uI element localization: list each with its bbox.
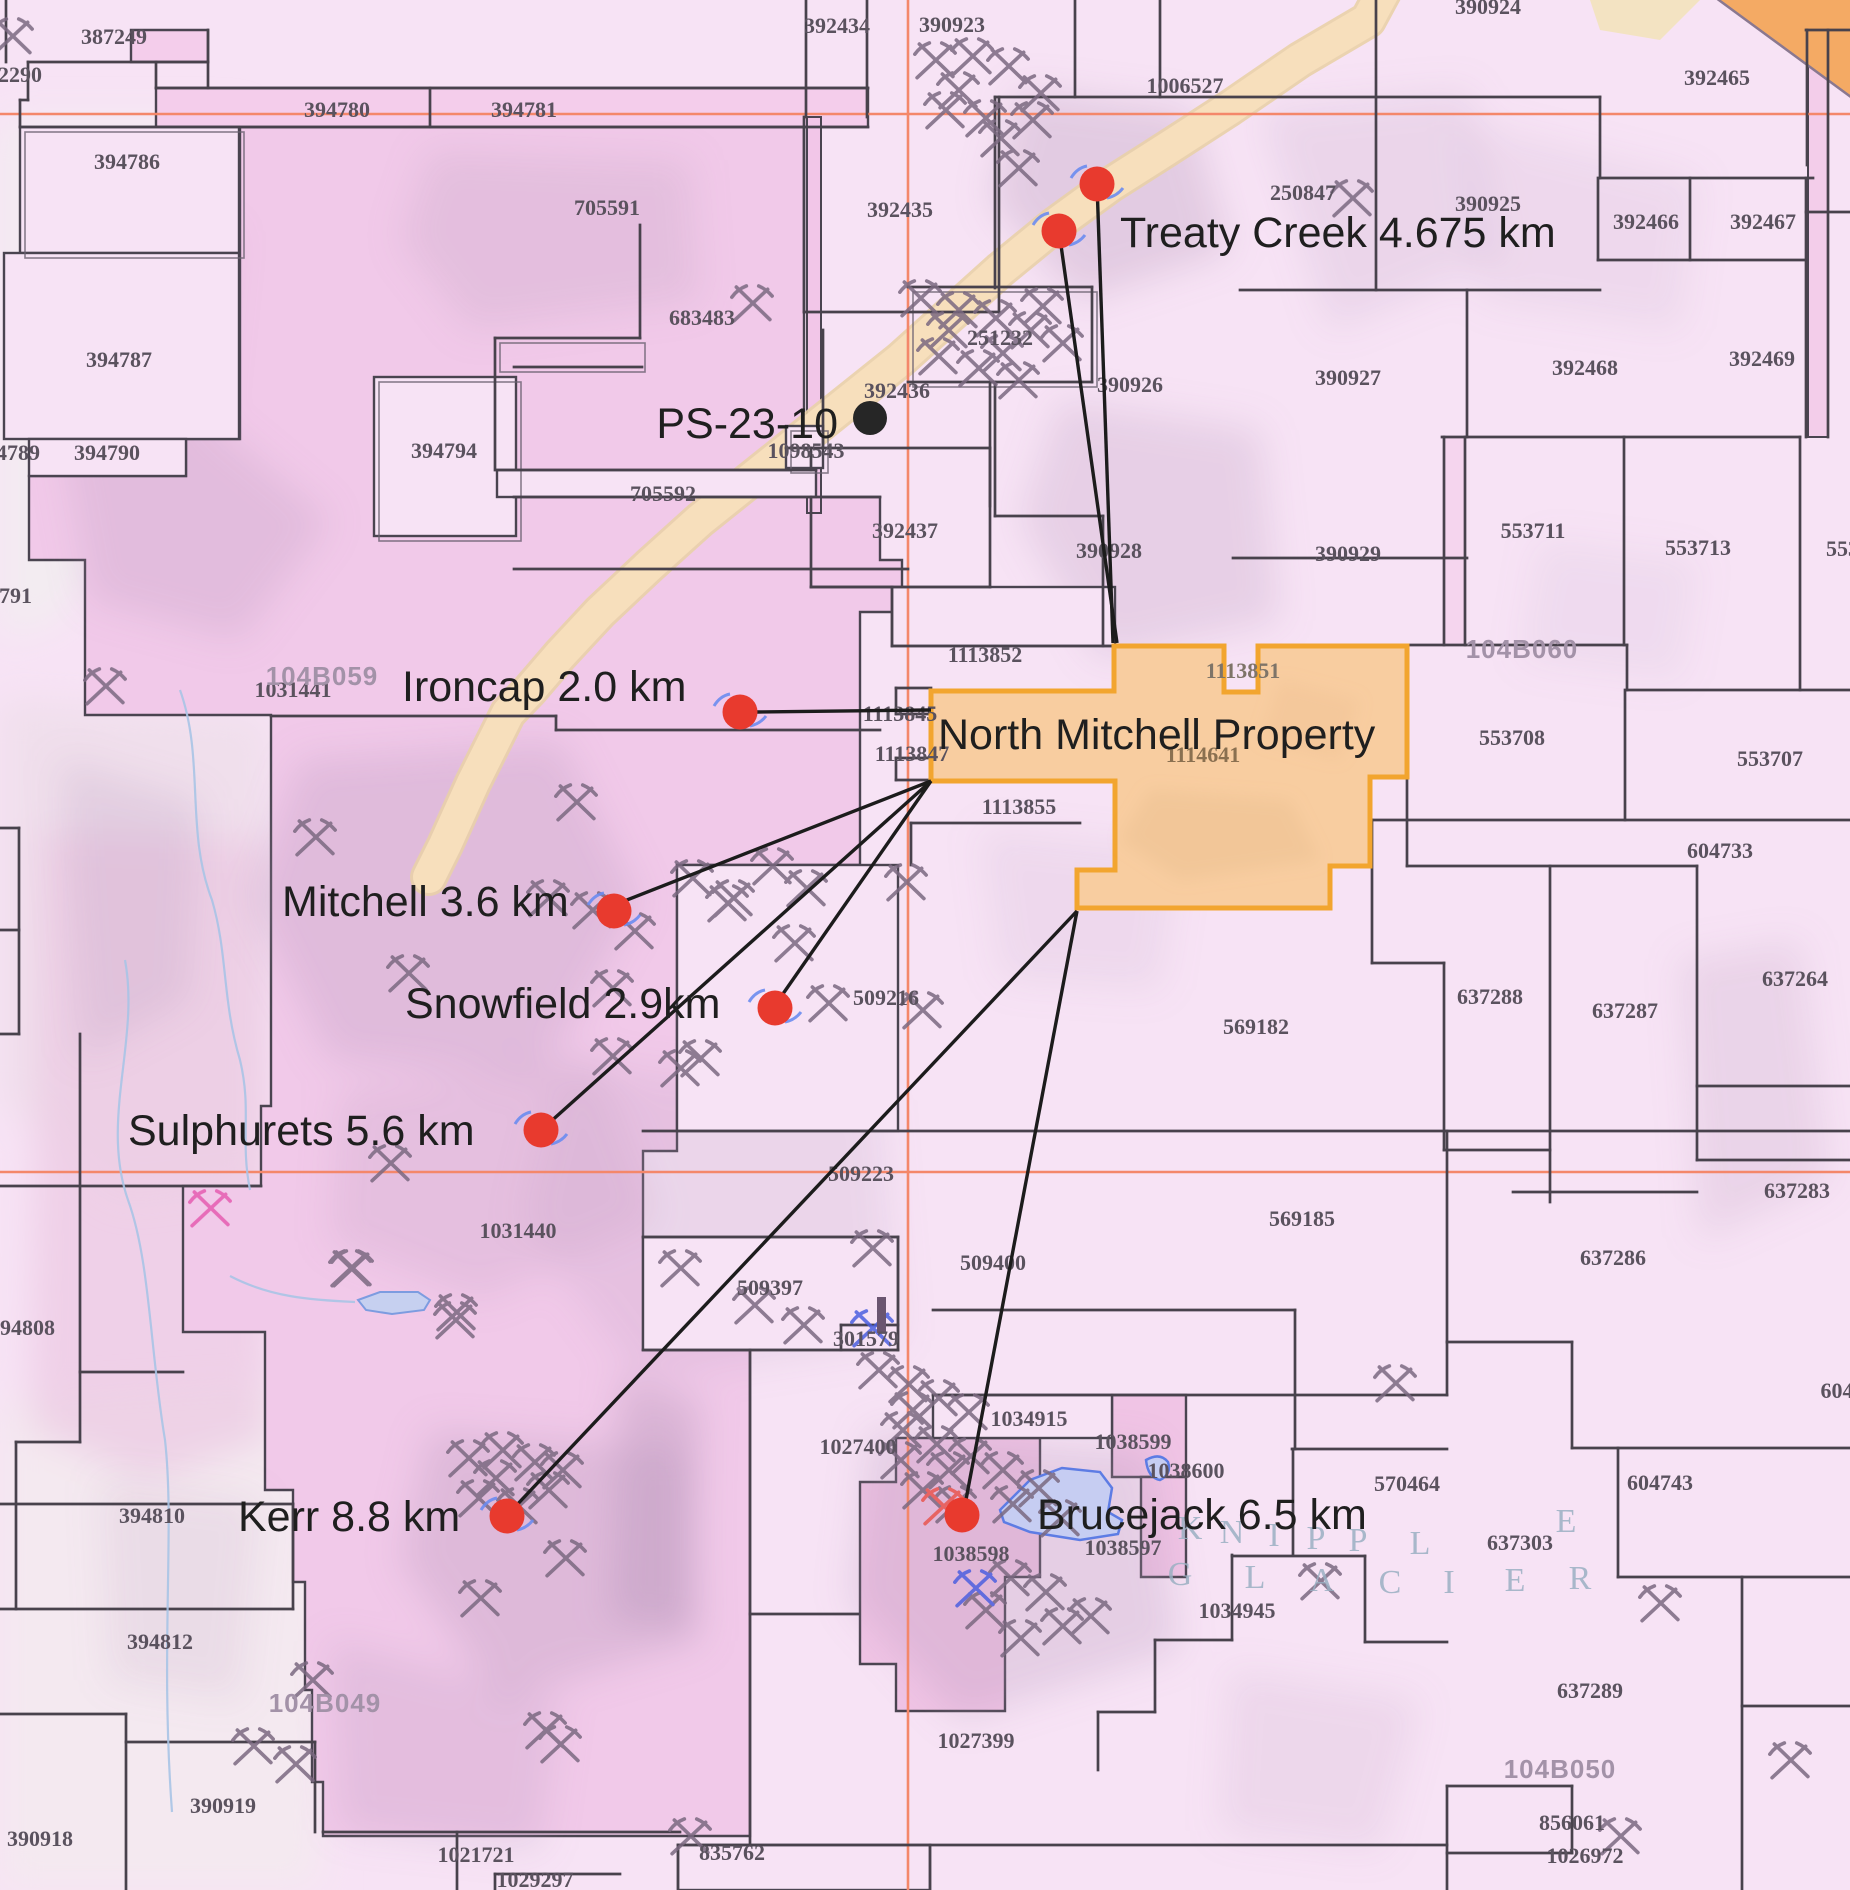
- svg-text:390926: 390926: [1097, 372, 1163, 397]
- svg-text:1034915: 1034915: [991, 1406, 1068, 1431]
- svg-text:104B059: 104B059: [266, 661, 379, 691]
- svg-text:1038600: 1038600: [1148, 1458, 1225, 1483]
- svg-text:Snowfield 2.9km: Snowfield 2.9km: [405, 980, 721, 1028]
- svg-text:2290: 2290: [0, 62, 42, 87]
- svg-text:705591: 705591: [574, 195, 640, 220]
- svg-text:North Mitchell Property: North Mitchell Property: [938, 711, 1376, 759]
- svg-text:394787: 394787: [86, 347, 152, 372]
- svg-text:553711: 553711: [1501, 518, 1566, 543]
- svg-text:569185: 569185: [1269, 1206, 1335, 1231]
- svg-text:390927: 390927: [1315, 365, 1381, 390]
- svg-text:L: L: [1410, 1525, 1431, 1562]
- svg-text:637264: 637264: [1762, 966, 1828, 991]
- svg-text:104B050: 104B050: [1504, 1754, 1617, 1784]
- svg-text:1113852: 1113852: [948, 642, 1023, 667]
- svg-text:1031440: 1031440: [480, 1218, 557, 1243]
- svg-text:1113851: 1113851: [1206, 658, 1281, 683]
- svg-text:509400: 509400: [960, 1250, 1026, 1275]
- svg-text:1034945: 1034945: [1199, 1598, 1276, 1623]
- svg-text:Brucejack 6.5 km: Brucejack 6.5 km: [1037, 1491, 1367, 1539]
- svg-text:392467: 392467: [1730, 209, 1796, 234]
- svg-text:705592: 705592: [630, 481, 696, 506]
- svg-text:Mitchell 3.6 km: Mitchell 3.6 km: [282, 878, 569, 926]
- svg-text:390924: 390924: [1455, 0, 1521, 19]
- svg-text:392466: 392466: [1613, 209, 1679, 234]
- svg-text:1113845: 1113845: [863, 701, 938, 726]
- svg-text:394810: 394810: [119, 1503, 185, 1528]
- svg-text:637289: 637289: [1557, 1678, 1623, 1703]
- svg-text:509216: 509216: [853, 985, 919, 1010]
- svg-text:301579: 301579: [833, 1326, 899, 1351]
- svg-text:390929: 390929: [1315, 541, 1381, 566]
- svg-text:1038598: 1038598: [933, 1541, 1010, 1566]
- svg-text:637283: 637283: [1764, 1178, 1830, 1203]
- svg-text:683483: 683483: [669, 305, 735, 330]
- svg-text:392465: 392465: [1684, 65, 1750, 90]
- svg-text:C: C: [1379, 1564, 1402, 1601]
- svg-text:394790: 394790: [74, 440, 140, 465]
- svg-text:637303: 637303: [1487, 1530, 1553, 1555]
- svg-text:394781: 394781: [491, 97, 557, 122]
- svg-text:Ironcap 2.0 km: Ironcap 2.0 km: [402, 663, 686, 711]
- svg-text:1027399: 1027399: [938, 1728, 1015, 1753]
- svg-text:5537: 5537: [1826, 536, 1850, 561]
- svg-text:390923: 390923: [919, 12, 985, 37]
- svg-text:Kerr 8.8 km: Kerr 8.8 km: [238, 1493, 460, 1541]
- svg-text:104B060: 104B060: [1466, 634, 1579, 664]
- svg-text:392468: 392468: [1552, 355, 1618, 380]
- svg-text:637288: 637288: [1457, 984, 1523, 1009]
- svg-text:553708: 553708: [1479, 725, 1545, 750]
- svg-text:1026972: 1026972: [1547, 1843, 1624, 1868]
- svg-text:394794: 394794: [411, 438, 477, 463]
- svg-text:1021721: 1021721: [438, 1842, 515, 1867]
- svg-text:553713: 553713: [1665, 535, 1731, 560]
- svg-text:250847: 250847: [1270, 180, 1336, 205]
- svg-text:104B049: 104B049: [269, 1688, 382, 1718]
- svg-text:392469: 392469: [1729, 346, 1795, 371]
- svg-text:390919: 390919: [190, 1793, 256, 1818]
- svg-text:1006527: 1006527: [1147, 73, 1224, 98]
- svg-text:637287: 637287: [1592, 998, 1658, 1023]
- svg-text:1038599: 1038599: [1095, 1429, 1172, 1454]
- svg-text:Sulphurets 5.6 km: Sulphurets 5.6 km: [128, 1107, 475, 1155]
- svg-text:392436: 392436: [864, 378, 930, 403]
- svg-text:4789: 4789: [0, 440, 40, 465]
- svg-text:394786: 394786: [94, 149, 160, 174]
- svg-text:569182: 569182: [1223, 1014, 1289, 1039]
- svg-text:637286: 637286: [1580, 1245, 1646, 1270]
- svg-text:835762: 835762: [699, 1840, 765, 1865]
- svg-text:604743: 604743: [1627, 1470, 1693, 1495]
- svg-text:G: G: [1168, 1556, 1193, 1593]
- svg-text:60474: 60474: [1821, 1378, 1850, 1403]
- svg-text:392435: 392435: [867, 197, 933, 222]
- svg-text:PS-23-10: PS-23-10: [656, 400, 838, 448]
- svg-text:1113855: 1113855: [982, 794, 1057, 819]
- svg-text:I: I: [1443, 1564, 1454, 1601]
- svg-text:387249: 387249: [81, 24, 147, 49]
- svg-text:4791: 4791: [0, 583, 32, 608]
- svg-text:856061: 856061: [1539, 1810, 1605, 1835]
- svg-text:570464: 570464: [1374, 1471, 1440, 1496]
- svg-text:394808: 394808: [0, 1315, 55, 1340]
- svg-text:390918: 390918: [7, 1826, 73, 1851]
- svg-text:L: L: [1245, 1559, 1266, 1596]
- svg-text:553707: 553707: [1737, 746, 1803, 771]
- svg-text:A: A: [1310, 1562, 1335, 1599]
- svg-text:R: R: [1569, 1560, 1592, 1597]
- svg-text:394812: 394812: [127, 1629, 193, 1654]
- svg-text:E: E: [1505, 1562, 1526, 1599]
- svg-text:392434: 392434: [804, 13, 870, 38]
- svg-text:1027400: 1027400: [820, 1434, 897, 1459]
- svg-text:392437: 392437: [872, 518, 938, 543]
- svg-text:604733: 604733: [1687, 838, 1753, 863]
- svg-text:509397: 509397: [737, 1275, 803, 1300]
- svg-text:1029297: 1029297: [497, 1867, 574, 1890]
- svg-text:394780: 394780: [304, 97, 370, 122]
- svg-text:Treaty Creek 4.675 km: Treaty Creek 4.675 km: [1120, 209, 1556, 257]
- svg-text:251232: 251232: [967, 325, 1033, 350]
- svg-text:E: E: [1556, 1503, 1577, 1540]
